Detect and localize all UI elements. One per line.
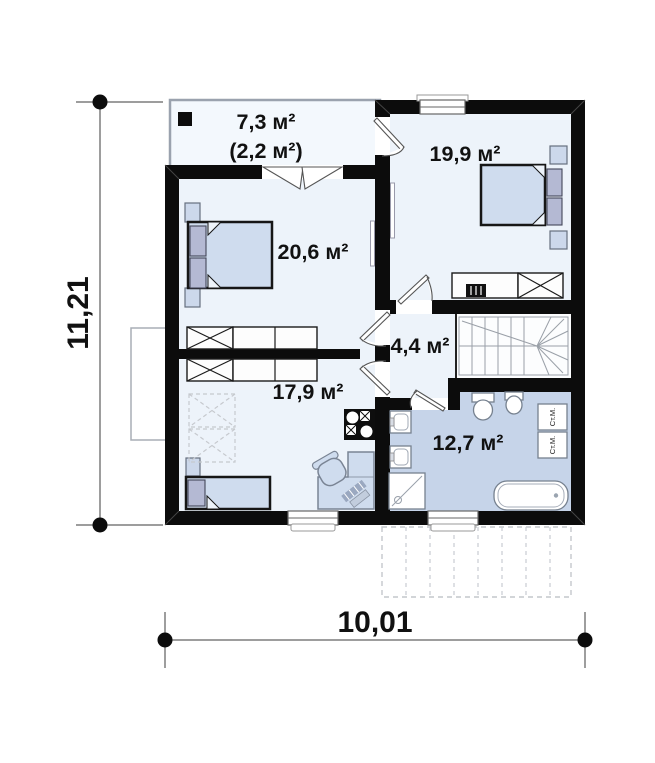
bathtub-icon — [494, 481, 568, 510]
width-dimension-label: 10,01 — [337, 606, 412, 639]
radiator — [371, 221, 375, 266]
pillow — [547, 169, 562, 196]
toilet-icon — [472, 393, 494, 420]
pillow — [190, 258, 206, 288]
sink-icon — [390, 411, 411, 433]
balcony-column — [178, 112, 192, 126]
bathroom-area-label: 12,7 м² — [433, 431, 504, 455]
dimension-dot — [93, 518, 108, 533]
bedroom-left-area-label: 20,6 м² — [278, 240, 349, 264]
floor-plan: 11,21 10,01 — [0, 0, 655, 763]
washing-machine-label: Ст.М. — [548, 408, 557, 426]
height-dimension-label: 11,21 — [62, 276, 95, 349]
sink-icon — [390, 446, 411, 468]
pillow — [190, 226, 206, 256]
side-bay-outline — [131, 328, 167, 440]
balcony-area-note: (2,2 м²) — [229, 139, 302, 163]
wardrobe-row-room-lower — [187, 359, 317, 381]
room-lower-area-label: 17,9 м² — [273, 380, 344, 404]
window-bottom-right — [428, 511, 478, 531]
window-bottom-left — [288, 511, 338, 531]
washing-machine-bottom: Ст.М. — [538, 432, 567, 458]
stove-icon — [344, 409, 375, 440]
wardrobe-bedroom-right — [452, 273, 563, 298]
dimension-dot — [578, 633, 593, 648]
shower-icon — [389, 473, 425, 509]
dimension-horizontal: 10,01 — [158, 606, 593, 668]
window-top — [417, 95, 468, 114]
pillow — [188, 480, 205, 506]
dimension-vertical: 11,21 — [62, 95, 163, 533]
hallway-area-label: 4,4 м² — [391, 334, 450, 358]
balcony-area-label: 7,3 м² — [237, 110, 296, 134]
pergola-outline — [382, 527, 571, 597]
bedroom-right-area-label: 19,9 м² — [430, 142, 501, 166]
bidet-icon — [505, 392, 523, 414]
dimension-dot — [93, 95, 108, 110]
radiator — [391, 183, 395, 238]
dimension-dot — [158, 633, 173, 648]
washing-machine-label: Ст.М. — [548, 436, 557, 454]
floor-plan-canvas: 11,21 10,01 — [0, 0, 655, 763]
washing-machine-top: Ст.М. — [538, 404, 567, 430]
wardrobe-row-bedroom-left — [187, 327, 317, 349]
pillow — [547, 198, 562, 225]
